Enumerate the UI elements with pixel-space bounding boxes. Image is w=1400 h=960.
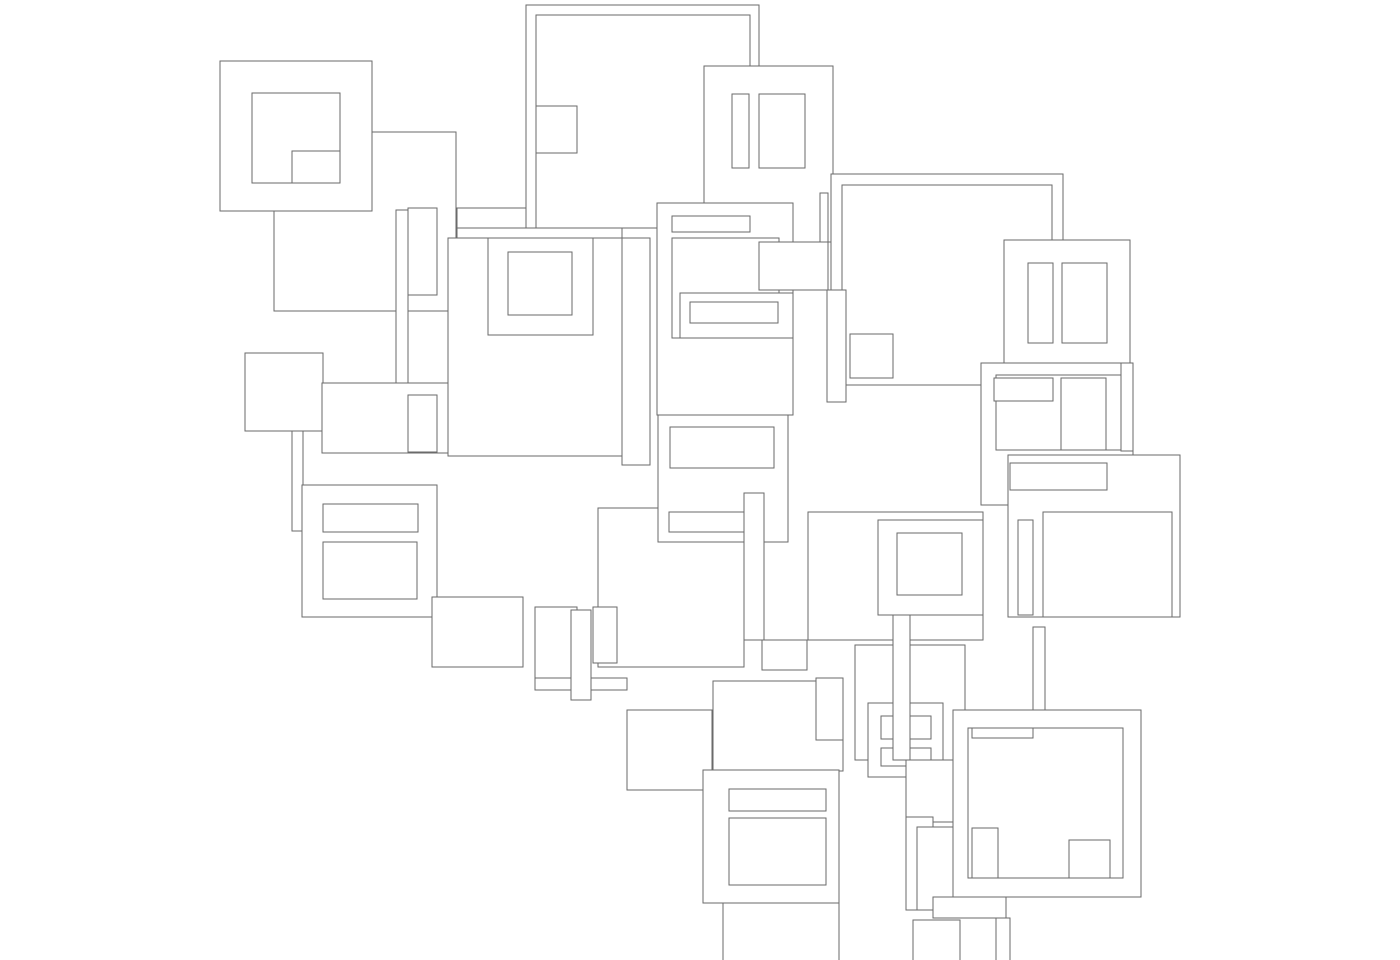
rectangle-outline xyxy=(762,640,807,670)
rectangle-outline xyxy=(508,252,572,315)
rectangle-outline xyxy=(627,710,712,790)
rectangle-outline xyxy=(396,210,408,393)
rectangle-outline xyxy=(593,607,617,663)
rectangle-outline xyxy=(1010,463,1107,490)
rectangle-outline xyxy=(816,678,843,740)
rectangle-outline xyxy=(1062,263,1107,343)
rectangle-outline xyxy=(897,533,962,595)
rectangle-outline xyxy=(669,512,746,532)
rectangle-outline xyxy=(1061,378,1106,450)
rectangle-outline xyxy=(672,216,750,232)
rectangle-outline xyxy=(245,353,323,431)
rectangle-outline xyxy=(622,238,650,465)
abstract-line-art xyxy=(0,0,1400,960)
rectangle-outline xyxy=(536,106,577,153)
rectangle-outline xyxy=(972,728,1033,738)
rectangle-outline xyxy=(1069,840,1110,878)
rectangle-outline xyxy=(933,897,1006,918)
rectangle-outline xyxy=(408,208,437,295)
rectangle-outline xyxy=(1028,263,1053,343)
rectangle-outline xyxy=(759,242,828,290)
rectangle-outline xyxy=(729,818,826,885)
rectangle-outline xyxy=(1121,363,1133,451)
rectangle-outline xyxy=(994,378,1053,401)
rectangle-outline xyxy=(732,94,749,168)
rectangle-outline xyxy=(1033,627,1045,710)
rectangle-outline xyxy=(759,94,805,168)
rectangle-outline xyxy=(729,789,826,811)
rectangle-outline xyxy=(996,918,1010,960)
rectangle-outline xyxy=(323,542,417,599)
rectangle-outline xyxy=(571,610,591,700)
rectangle-outline xyxy=(827,290,846,402)
rectangle-outline xyxy=(913,920,960,960)
rectangle-outline xyxy=(457,208,527,228)
rectangle-outline xyxy=(1018,520,1033,615)
rectangle-outline xyxy=(972,828,998,878)
rectangle-outline xyxy=(408,395,437,452)
rectangle-outline xyxy=(432,597,523,667)
rectangle-outline xyxy=(690,302,778,323)
rectangle-outline xyxy=(292,151,340,183)
artwork-canvas xyxy=(0,0,1400,960)
rectangle-outline xyxy=(323,504,418,532)
rectangle-outline xyxy=(670,427,774,468)
rectangle-outline xyxy=(723,903,839,960)
rectangle-outline xyxy=(893,615,910,760)
rectangle-outline xyxy=(850,334,893,378)
rectangle-outlines-group xyxy=(220,5,1180,960)
rectangle-outline xyxy=(1043,512,1172,617)
rectangle-outline xyxy=(744,493,764,640)
